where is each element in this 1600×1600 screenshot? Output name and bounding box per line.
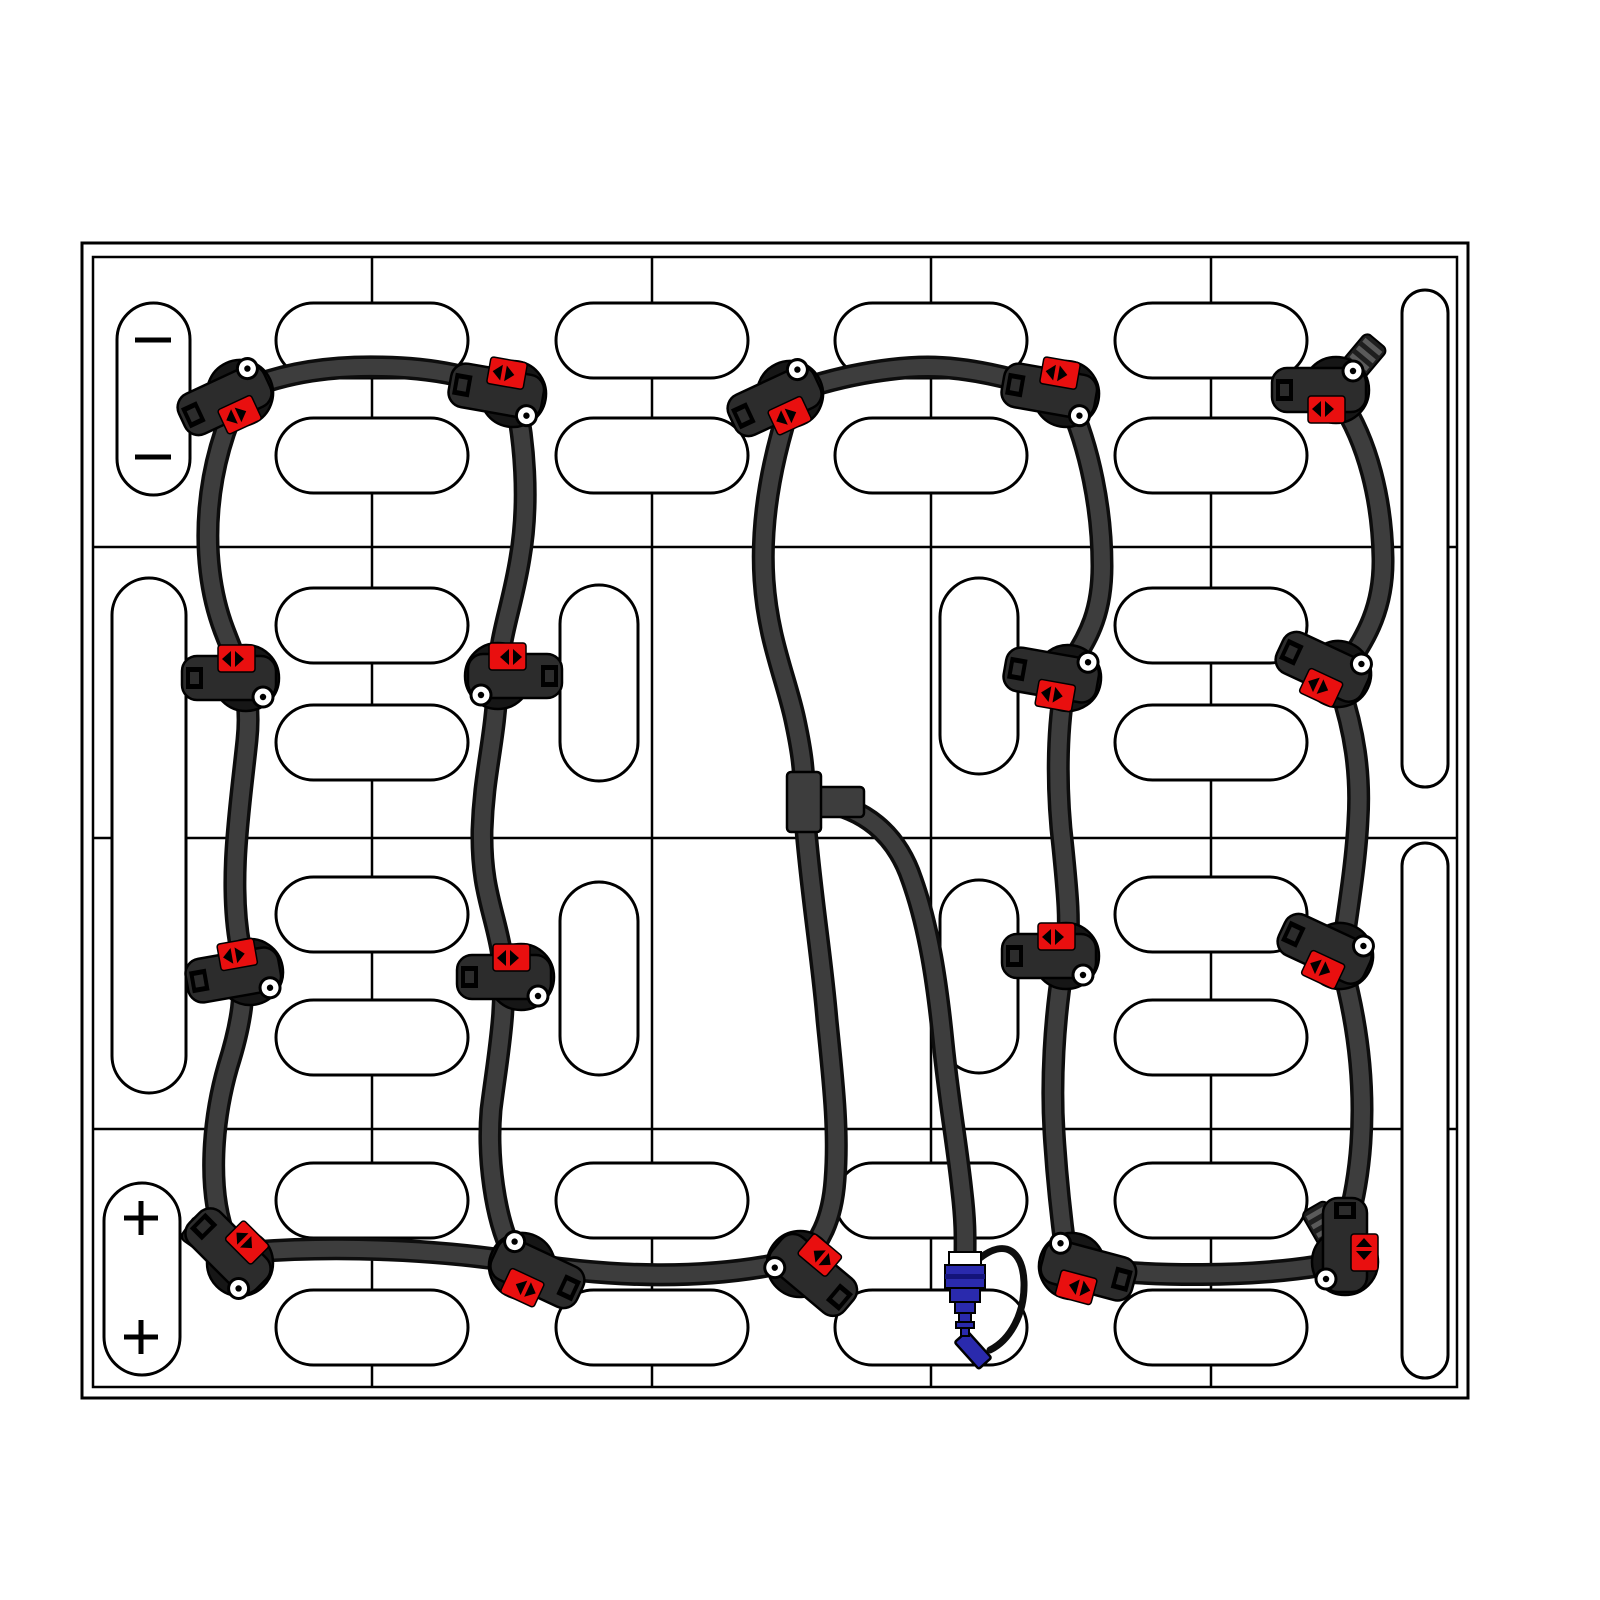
coupler-divider-band (945, 1274, 985, 1279)
battery-cap-pill-horizontal (276, 588, 468, 663)
battery-cap-pill-horizontal (556, 303, 748, 378)
battery-cap-pill-horizontal (1115, 1290, 1307, 1365)
battery-cap-pill-vertical (1402, 843, 1448, 1378)
battery-cap-pill-horizontal (276, 1290, 468, 1365)
battery-cap-pill-horizontal (276, 705, 468, 780)
battery-cap-pill-vertical (560, 585, 638, 781)
battery-cap-pill-horizontal (1115, 1000, 1307, 1075)
valve-jaw-notch-inner (465, 971, 474, 983)
battery-cap-pill-horizontal (556, 1163, 748, 1238)
battery-cap-pill-vertical (1402, 290, 1448, 787)
flow-indicator (493, 944, 530, 971)
battery-cap-pill-vertical (112, 578, 186, 1093)
battery-cap-pill-horizontal (835, 418, 1027, 493)
valve-jaw-notch-inner (1339, 1206, 1351, 1215)
flow-indicator (1308, 396, 1345, 423)
valve-jaw-notch-inner (1010, 950, 1019, 962)
watering-valve-clamp (465, 643, 562, 709)
watering-valve-clamp (1312, 1198, 1378, 1295)
watering-valve-clamp (1002, 923, 1099, 989)
valve-sight-dot-center (1080, 972, 1086, 978)
valve-sight-dot-center (478, 692, 484, 698)
battery-cap-pill-horizontal (556, 1290, 748, 1365)
battery-cap-pill-horizontal (556, 418, 748, 493)
diagram-stage (0, 0, 1600, 1600)
flow-indicator (1038, 923, 1075, 950)
battery-cap-pill-horizontal (1115, 705, 1307, 780)
watering-valve-clamp (1272, 357, 1369, 423)
battery-cap-pill-horizontal (276, 418, 468, 493)
flow-indicator (218, 645, 255, 672)
valve-sight-dot-center (260, 694, 266, 700)
coupler-white-band (949, 1252, 981, 1265)
battery-cap-pill-horizontal (1115, 418, 1307, 493)
battery-cap-pill-horizontal (1115, 1163, 1307, 1238)
flow-indicator (217, 938, 258, 971)
battery-cap-pill-horizontal (835, 1163, 1027, 1238)
flow-indicator (1351, 1234, 1378, 1271)
battery-cap-pill-horizontal (276, 877, 468, 952)
battery-cap-pill-vertical (560, 882, 638, 1075)
battery-cap-pill-horizontal (1115, 303, 1307, 378)
battery-cap-pill-horizontal (276, 1000, 468, 1075)
flow-indicator (1035, 679, 1076, 712)
battery-cap-pill-horizontal (835, 1290, 1027, 1365)
valve-sight-dot-center (1350, 368, 1356, 374)
battery-cap-pill-horizontal (276, 1163, 468, 1238)
flow-indicator (1039, 357, 1080, 390)
watering-valve-clamp (182, 645, 279, 711)
coupler-body-block (955, 1302, 975, 1313)
valve-sight-dot-center (535, 993, 541, 999)
tee-branch-port (816, 787, 864, 817)
valve-jaw-notch-inner (1280, 384, 1289, 396)
flow-indicator (486, 357, 527, 390)
coupler-body-block (959, 1313, 971, 1322)
valve-jaw-notch-inner (545, 670, 554, 682)
coupler-body-block (961, 1328, 969, 1336)
tee-main-body (787, 772, 821, 832)
valve-jaw-notch-inner (190, 672, 199, 684)
coupler-body-block (950, 1288, 980, 1302)
diagram-canvas (0, 0, 1600, 1600)
valve-sight-dot-center (1323, 1276, 1329, 1282)
positive-terminal (104, 1183, 180, 1375)
flow-indicator (489, 643, 526, 670)
watering-valve-clamp (457, 944, 554, 1010)
